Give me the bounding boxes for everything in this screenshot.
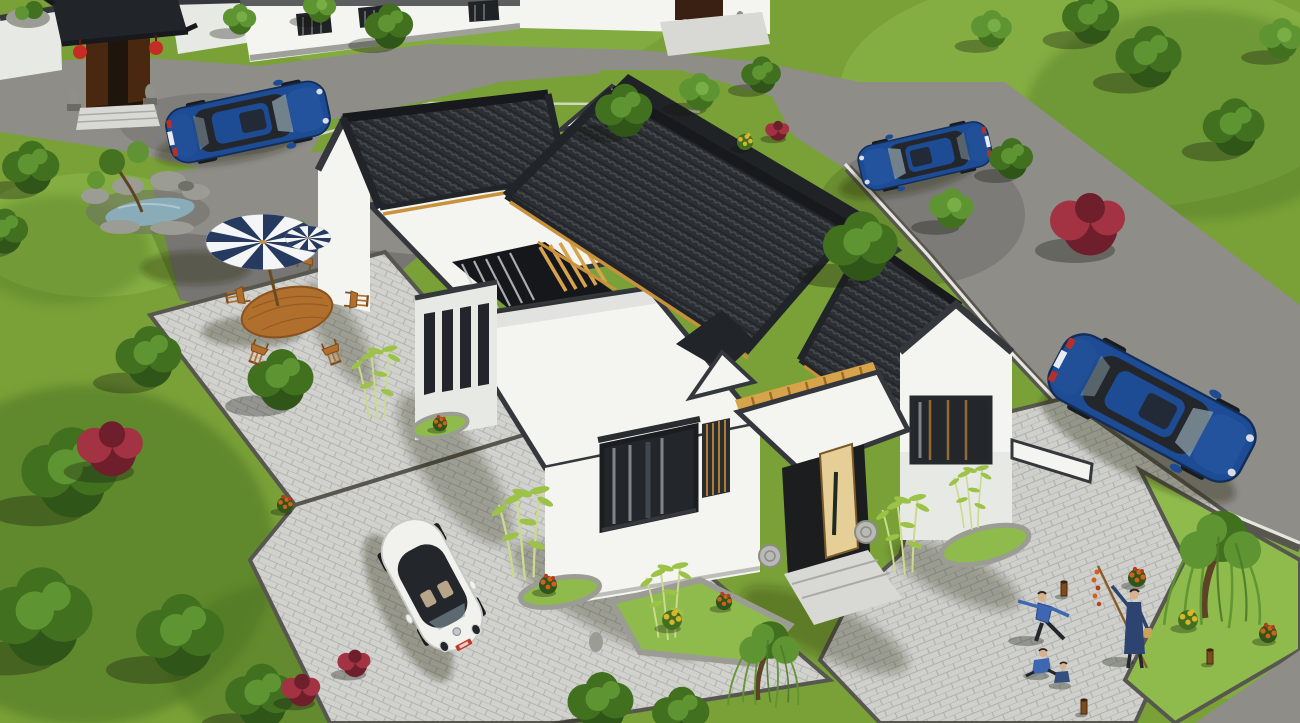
stone-drum xyxy=(759,545,781,567)
scene-render: Aerial 3D rendering of a Chinese-style s… xyxy=(0,0,1300,723)
gable-window xyxy=(912,398,990,462)
gate-steps xyxy=(76,104,160,130)
timber-slat-screen xyxy=(702,418,730,498)
aerial-render-svg: Aerial 3D rendering of a Chinese-style s… xyxy=(0,0,1300,723)
garden-rock xyxy=(589,632,603,652)
red-lantern xyxy=(149,41,163,55)
stone-drum xyxy=(855,521,877,543)
gate-door-left xyxy=(86,39,108,108)
entrance-door xyxy=(820,444,858,558)
small-umbrella xyxy=(285,226,331,250)
red-lantern xyxy=(73,45,87,59)
front-window xyxy=(602,426,696,530)
